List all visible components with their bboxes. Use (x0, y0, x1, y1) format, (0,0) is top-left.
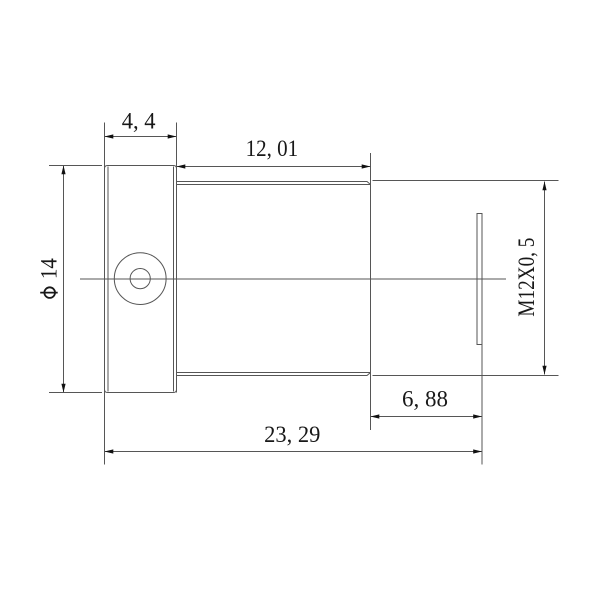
svg-text:4, 4: 4, 4 (122, 108, 156, 133)
svg-text:M12X0, 5: M12X0, 5 (514, 238, 539, 317)
svg-text:14: 14 (37, 258, 62, 279)
svg-text:12, 01: 12, 01 (246, 136, 299, 161)
svg-text:6, 88: 6, 88 (402, 387, 448, 412)
svg-text:23, 29: 23, 29 (264, 422, 320, 447)
